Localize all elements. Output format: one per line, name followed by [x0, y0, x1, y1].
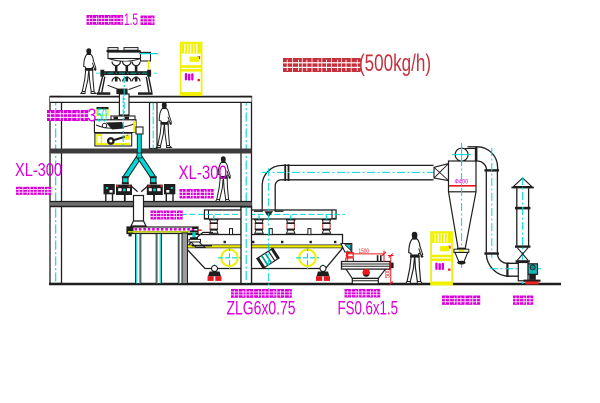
- svg-text:500: 500: [386, 268, 392, 278]
- svg-text:50: 50: [97, 106, 107, 126]
- svg-text:3: 3: [88, 106, 97, 126]
- svg-text:XL-300: XL-300: [179, 163, 228, 184]
- svg-text:(500kg/h): (500kg/h): [359, 50, 431, 77]
- svg-text:XL-300: XL-300: [15, 159, 62, 180]
- svg-text:ZLG6x0.75: ZLG6x0.75: [227, 299, 296, 320]
- svg-text:1500: 1500: [359, 249, 370, 255]
- svg-text:FS0.6x1.5: FS0.6x1.5: [338, 299, 399, 320]
- svg-text:1.5: 1.5: [124, 10, 138, 29]
